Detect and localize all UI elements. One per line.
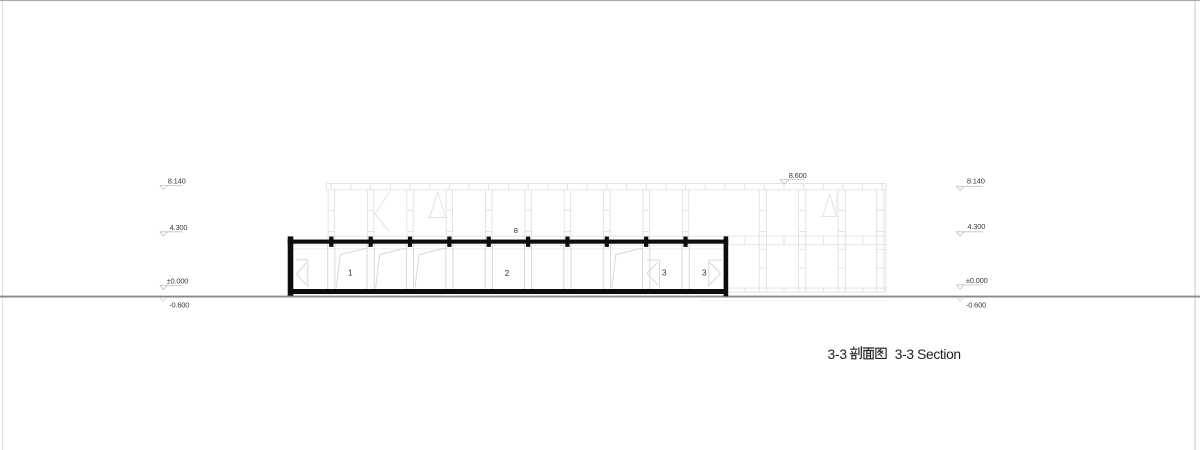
- svg-text:3-3: 3-3: [828, 347, 848, 362]
- svg-text:2: 2: [505, 269, 510, 278]
- svg-text:±0.000: ±0.000: [966, 276, 988, 285]
- svg-text:3-3 Section: 3-3 Section: [895, 347, 961, 362]
- svg-text:8.140: 8.140: [967, 176, 985, 185]
- svg-text:4.300: 4.300: [967, 222, 985, 231]
- svg-text:3: 3: [702, 269, 707, 278]
- svg-text:4.300: 4.300: [170, 223, 188, 232]
- svg-text:8: 8: [514, 226, 518, 235]
- svg-text:-0.600: -0.600: [966, 300, 986, 309]
- svg-text:8.140: 8.140: [168, 176, 186, 185]
- svg-text:-0.600: -0.600: [169, 301, 189, 310]
- svg-text:3: 3: [662, 269, 667, 278]
- svg-text:8.600: 8.600: [789, 171, 807, 180]
- svg-text:±0.000: ±0.000: [167, 277, 189, 286]
- svg-text:1: 1: [348, 268, 353, 277]
